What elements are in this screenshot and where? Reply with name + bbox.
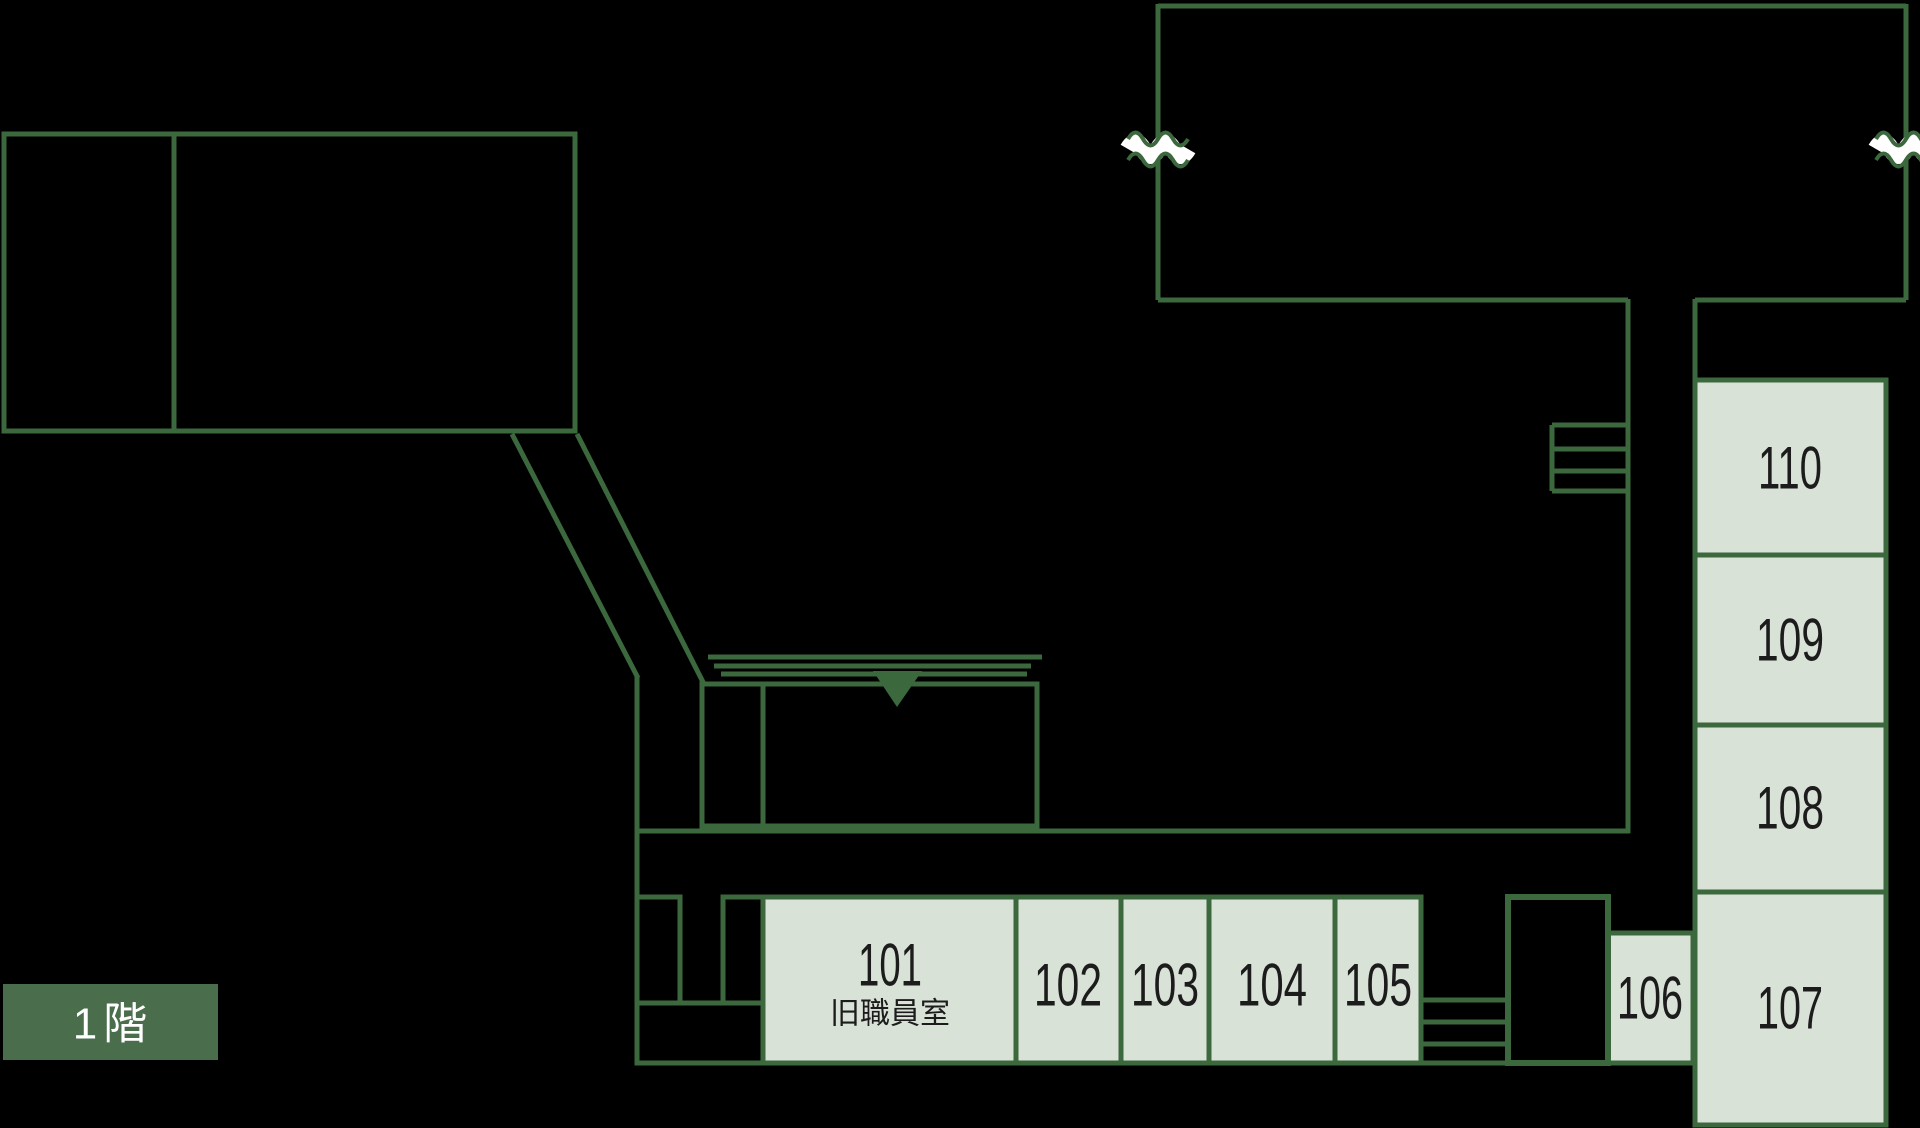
room-107-number-label: 107 xyxy=(1757,975,1823,1042)
floor-badge-label: 1階 xyxy=(73,1000,153,1049)
room-104-number-label: 104 xyxy=(1237,952,1307,1019)
floor-plan-canvas: 101 旧職員室 102 103 104 105 106 107 108 109… xyxy=(0,0,1920,1128)
unlabeled-room xyxy=(1508,897,1608,1063)
entrance-triangle-icon xyxy=(873,671,922,707)
entrance-hall-outline xyxy=(702,684,1037,826)
diagonal-corridor-wall-right xyxy=(577,434,704,684)
service-compartment-b xyxy=(723,897,763,1003)
diagonal-corridor-wall-left xyxy=(512,434,638,678)
room-105-number-label: 105 xyxy=(1344,952,1412,1019)
service-room-lower xyxy=(637,1003,763,1063)
upper-left-building-outline xyxy=(4,134,575,431)
room-103-number-label: 103 xyxy=(1131,952,1199,1019)
room-101-name-label: 旧職員室 xyxy=(830,998,950,1031)
room-102-number-label: 102 xyxy=(1034,952,1102,1019)
service-compartment-a xyxy=(637,897,680,1003)
wall-break-mark-left-icon xyxy=(1128,133,1188,167)
room-106-number-label: 106 xyxy=(1617,965,1683,1032)
stairs-upper-icon xyxy=(1552,425,1628,491)
stairs-lower-icon xyxy=(1421,1000,1508,1044)
floor-plan-page: 101 旧職員室 102 103 104 105 106 107 108 109… xyxy=(0,0,1920,1128)
room-108-number-label: 108 xyxy=(1756,775,1824,842)
room-110-number-label: 110 xyxy=(1758,435,1822,502)
floor-badge: 1階 xyxy=(3,984,218,1060)
room-109-number-label: 109 xyxy=(1756,607,1824,674)
room-101-number-label: 101 xyxy=(858,932,922,999)
wall-break-mark-right-icon xyxy=(1876,133,1920,167)
